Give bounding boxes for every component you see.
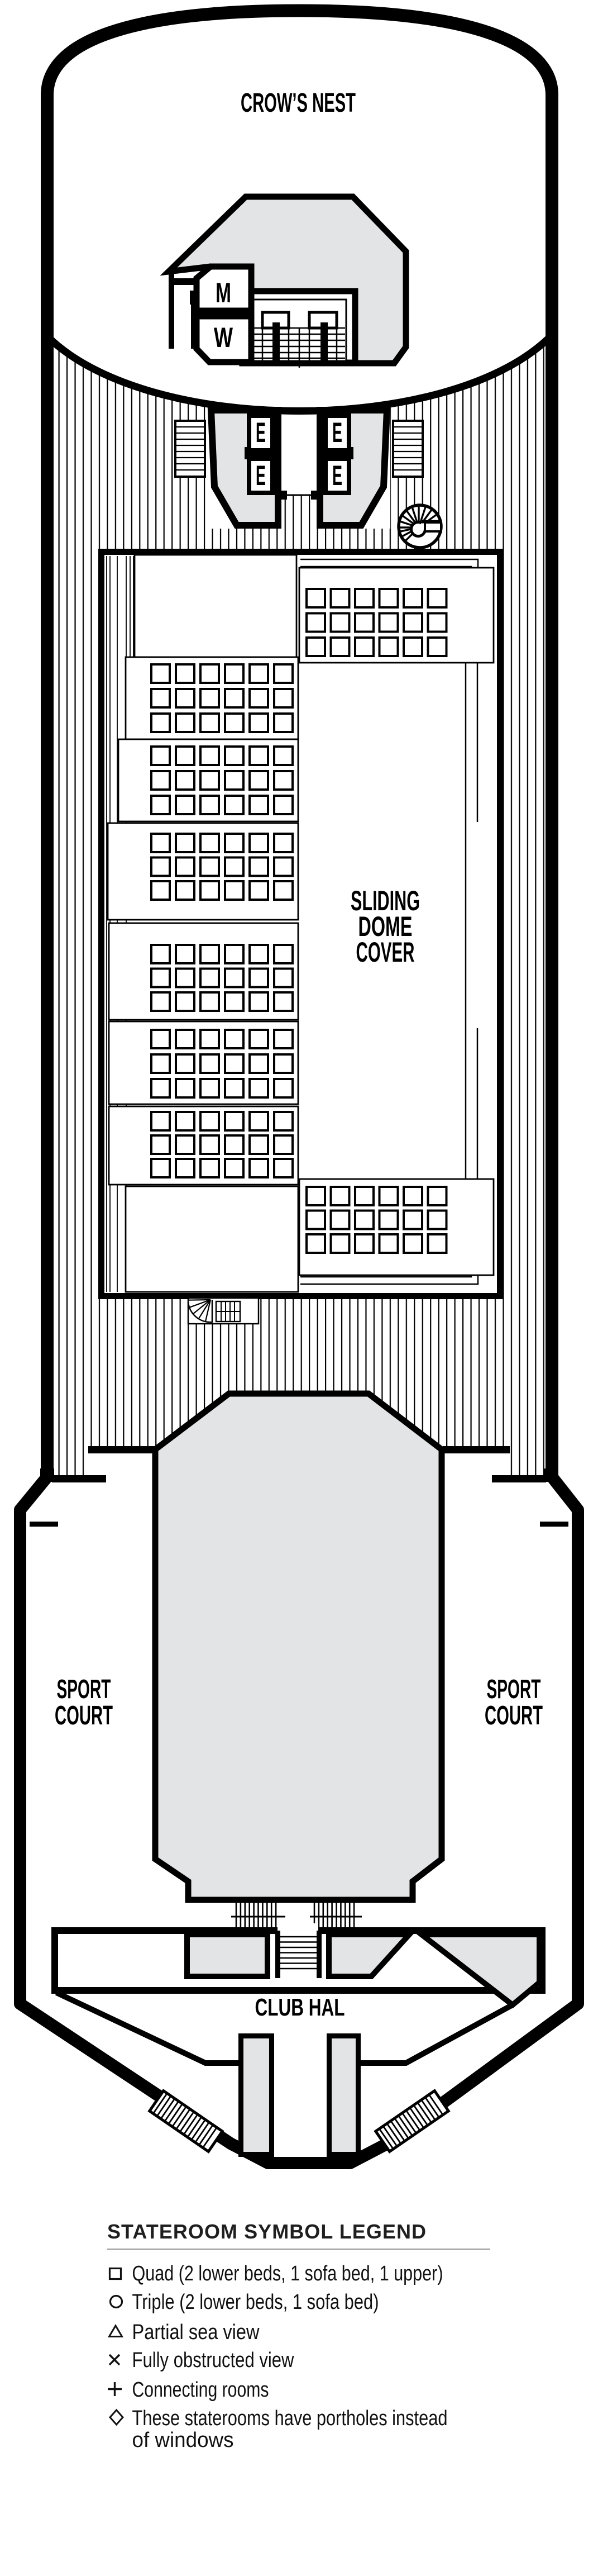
svg-text:SPORT: SPORT [487, 1675, 541, 1704]
svg-text:E: E [256, 417, 266, 448]
svg-text:E: E [256, 460, 266, 491]
svg-text:E: E [332, 460, 342, 491]
svg-text:Triple (2 lower beds, 1 sofa b: Triple (2 lower beds, 1 sofa bed) [132, 2290, 379, 2314]
svg-text:COVER: COVER [356, 937, 415, 968]
svg-text:STATEROOM SYMBOL LEGEND: STATEROOM SYMBOL LEGEND [107, 2220, 427, 2243]
svg-text:COURT: COURT [485, 1701, 543, 1731]
svg-text:Connecting rooms: Connecting rooms [132, 2378, 269, 2402]
svg-text:COURT: COURT [55, 1701, 113, 1731]
svg-text:W: W [214, 322, 233, 353]
svg-text:SPORT: SPORT [57, 1675, 111, 1704]
svg-text:M: M [216, 277, 231, 308]
svg-text:Partial sea view: Partial sea view [132, 2321, 260, 2344]
svg-text:E: E [332, 417, 342, 448]
svg-text:These staterooms have porthole: These staterooms have portholes instead [132, 2407, 448, 2430]
svg-text:CROW’S NEST: CROW’S NEST [241, 88, 356, 118]
svg-text:Quad (2 lower beds, 1 sofa bed: Quad (2 lower beds, 1 sofa bed, 1 upper) [132, 2262, 443, 2285]
svg-text:of windows: of windows [132, 2428, 234, 2452]
svg-text:CLUB HAL: CLUB HAL [255, 1994, 345, 2021]
svg-text:Fully obstructed view: Fully obstructed view [132, 2349, 294, 2372]
